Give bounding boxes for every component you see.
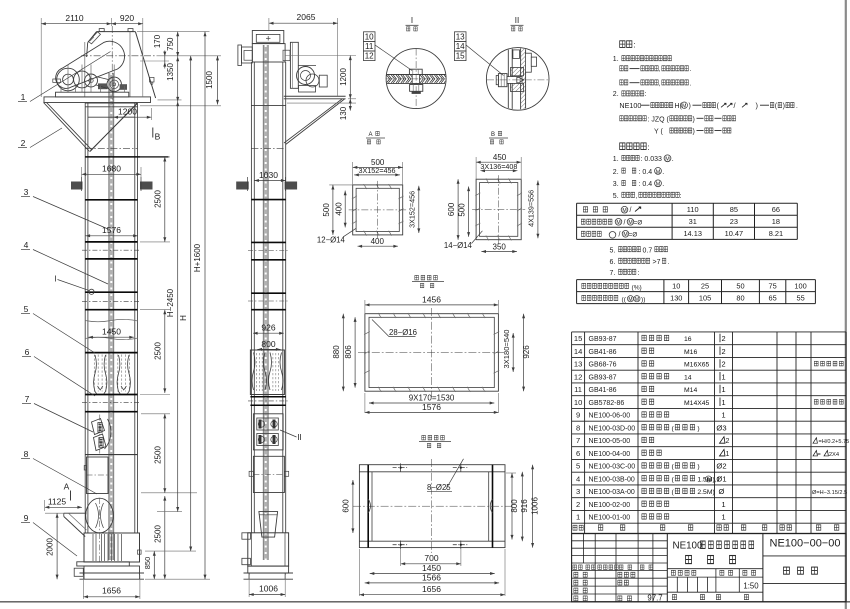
svg-text:450: 450	[493, 153, 507, 162]
svg-text:.: .	[690, 66, 692, 73]
svg-text:65: 65	[768, 293, 776, 302]
svg-text:M: M	[665, 157, 670, 163]
svg-text:1450: 1450	[102, 326, 121, 336]
svg-text:14: 14	[456, 42, 465, 51]
svg-text:28−Ø16: 28−Ø16	[389, 328, 417, 337]
svg-text:NE100-04-00: NE100-04-00	[589, 451, 631, 458]
svg-text:10.47: 10.47	[725, 229, 744, 238]
svg-text:>7: >7	[653, 259, 661, 266]
svg-text:2500: 2500	[153, 446, 162, 464]
svg-text:M14: M14	[684, 387, 697, 394]
svg-text:800: 800	[510, 499, 519, 513]
svg-text:1.: 1.	[613, 56, 619, 63]
svg-text:3.: 3.	[613, 181, 619, 188]
svg-text:2: 2	[721, 360, 725, 369]
svg-text:926: 926	[261, 323, 275, 333]
svg-text:3: 3	[24, 187, 29, 197]
svg-text::: :	[633, 41, 635, 50]
svg-text:7: 7	[576, 436, 580, 445]
svg-text:11: 11	[574, 385, 582, 394]
svg-text:1: 1	[721, 513, 725, 522]
svg-text:): )	[693, 129, 695, 136]
svg-text:12: 12	[574, 372, 582, 381]
svg-text:NE100-02-00: NE100-02-00	[589, 502, 631, 509]
svg-text:: 0.4: : 0.4	[639, 181, 653, 188]
svg-text:,: ,	[659, 66, 661, 73]
svg-text:3X136=408: 3X136=408	[480, 162, 517, 171]
svg-text:Ø2: Ø2	[716, 462, 726, 471]
svg-text:NE100−00−00: NE100−00−00	[770, 538, 841, 550]
svg-text:NE100-03C-00: NE100-03C-00	[589, 464, 636, 471]
svg-text:/: /	[619, 232, 621, 239]
svg-text:M: M	[682, 104, 686, 110]
svg-text:1125: 1125	[48, 497, 67, 507]
svg-text:2.: 2.	[613, 169, 619, 176]
svg-text:: 0.4: : 0.4	[639, 169, 653, 176]
svg-text:12: 12	[365, 52, 374, 61]
svg-text:105: 105	[699, 293, 711, 302]
svg-text:3X152=456: 3X152=456	[407, 191, 416, 228]
svg-text:1: 1	[721, 372, 725, 381]
svg-text:7.: 7.	[610, 270, 616, 277]
svg-text:.: .	[672, 156, 674, 163]
svg-text:,: ,	[636, 193, 638, 200]
svg-text::: :	[680, 193, 682, 200]
svg-text:920: 920	[120, 13, 134, 23]
svg-text:13: 13	[456, 32, 465, 41]
svg-text:2000: 2000	[46, 538, 55, 556]
svg-text:1656: 1656	[422, 584, 441, 594]
svg-text:): )	[693, 116, 695, 123]
svg-text:12−Ø14: 12−Ø14	[317, 236, 346, 245]
svg-text:700: 700	[424, 553, 438, 563]
svg-text:1500: 1500	[205, 71, 214, 89]
svg-text:1006: 1006	[259, 584, 278, 594]
svg-text:1566: 1566	[422, 572, 441, 582]
svg-text:1: 1	[726, 451, 730, 458]
svg-text:8: 8	[24, 449, 29, 459]
svg-text:.: .	[662, 181, 664, 188]
svg-text:M: M	[635, 297, 639, 303]
svg-text:18: 18	[772, 217, 780, 226]
svg-text::: :	[638, 270, 640, 277]
svg-text:97.7: 97.7	[647, 593, 662, 602]
svg-text:9: 9	[24, 513, 29, 523]
svg-text:1: 1	[721, 500, 725, 509]
svg-text:8.21: 8.21	[769, 229, 783, 238]
svg-text:916: 916	[520, 499, 529, 513]
svg-text:6: 6	[25, 347, 30, 357]
svg-text:10: 10	[365, 32, 374, 41]
svg-text:M: M	[628, 220, 632, 226]
svg-text:: 0.033: : 0.033	[641, 156, 663, 163]
svg-text:100: 100	[794, 281, 806, 290]
svg-text:1:50: 1:50	[743, 582, 759, 591]
svg-text:A: A	[64, 482, 70, 492]
svg-text:M: M	[616, 220, 620, 226]
svg-text:1576: 1576	[422, 402, 441, 412]
svg-text:4: 4	[24, 240, 29, 250]
svg-text:1: 1	[721, 411, 725, 420]
svg-text:110: 110	[687, 205, 699, 214]
svg-text:Ø: Ø	[719, 487, 725, 496]
svg-text:H−2450: H−2450	[166, 288, 175, 317]
svg-text:2500: 2500	[153, 190, 162, 208]
svg-text:GB93-87: GB93-87	[589, 336, 617, 343]
svg-text:/: /	[624, 219, 626, 226]
svg-text:H: H	[179, 315, 188, 321]
svg-text:1030: 1030	[259, 170, 278, 180]
svg-text:): )	[783, 103, 785, 110]
svg-text:=Ø: =Ø	[629, 231, 638, 238]
svg-text:M: M	[623, 232, 627, 238]
svg-text:600: 600	[447, 202, 456, 216]
svg-text:M: M	[656, 169, 661, 175]
svg-text:25: 25	[701, 281, 709, 290]
svg-text:850: 850	[143, 557, 152, 570]
svg-text:2110: 2110	[65, 13, 84, 23]
svg-text:170: 170	[153, 34, 162, 48]
svg-text:NE100-06-00: NE100-06-00	[589, 413, 631, 420]
svg-text:400: 400	[334, 202, 343, 216]
svg-text:M14X45: M14X45	[684, 400, 710, 407]
svg-text:7: 7	[25, 394, 30, 404]
svg-text:Ø1: Ø1	[716, 474, 726, 483]
svg-text:400: 400	[371, 237, 385, 246]
svg-text:M16: M16	[684, 349, 697, 356]
svg-text:1576: 1576	[102, 225, 121, 235]
svg-text:1: 1	[721, 385, 725, 394]
svg-text::: :	[647, 143, 649, 152]
svg-text:): )	[689, 103, 691, 110]
svg-text:NE100: NE100	[673, 541, 704, 552]
svg-text:NE100-05-00: NE100-05-00	[589, 438, 631, 445]
svg-text:4X139=556: 4X139=556	[526, 190, 535, 227]
svg-text:M: M	[656, 182, 661, 188]
svg-text:85: 85	[730, 205, 738, 214]
svg-text:1: 1	[721, 398, 725, 407]
svg-text:1680: 1680	[102, 164, 121, 174]
svg-text:4: 4	[576, 474, 580, 483]
svg-text:5: 5	[576, 462, 580, 471]
svg-text:8: 8	[576, 423, 580, 432]
svg-text:Y (: Y (	[654, 129, 663, 136]
svg-text:13: 13	[574, 360, 582, 369]
svg-text:15: 15	[574, 334, 582, 343]
svg-text:GB5782-86: GB5782-86	[589, 400, 625, 407]
svg-text:NE100-03B-00: NE100-03B-00	[589, 476, 635, 483]
svg-text:NE100-03A-00: NE100-03A-00	[589, 489, 635, 496]
svg-text:.: .	[662, 169, 664, 176]
svg-text:5: 5	[24, 304, 29, 314]
svg-text:2500: 2500	[153, 342, 162, 360]
svg-text:.: .	[796, 103, 798, 110]
svg-text:.: .	[668, 259, 670, 266]
svg-text:GB41-86: GB41-86	[589, 349, 617, 356]
svg-text:880: 880	[332, 345, 341, 359]
svg-text:10: 10	[672, 281, 680, 290]
svg-text::: :	[645, 91, 647, 98]
svg-text:3: 3	[576, 487, 580, 496]
svg-text:=Ø: =Ø	[634, 219, 643, 226]
svg-text:): )	[697, 425, 699, 432]
svg-text:16: 16	[684, 336, 692, 343]
svg-text:,: ,	[659, 80, 661, 87]
svg-text:Ø3: Ø3	[716, 423, 726, 432]
svg-text:3X152=456: 3X152=456	[359, 166, 396, 175]
svg-text:1456: 1456	[422, 294, 441, 304]
svg-text:B: B	[155, 132, 161, 142]
svg-text:NE100-03D-00: NE100-03D-00	[589, 425, 636, 432]
svg-text:): )	[756, 101, 758, 110]
svg-text:M: M	[628, 297, 632, 303]
svg-text:600: 600	[342, 499, 351, 513]
svg-text:14: 14	[684, 374, 692, 381]
svg-text:14.13: 14.13	[683, 229, 702, 238]
svg-text:M16X65: M16X65	[684, 362, 710, 369]
svg-text:)): ))	[641, 296, 645, 303]
svg-text:I: I	[54, 275, 56, 284]
svg-text:6.: 6.	[610, 259, 616, 266]
svg-text:23: 23	[730, 217, 738, 226]
svg-text:M: M	[707, 477, 711, 482]
svg-text:806: 806	[344, 345, 353, 359]
svg-text:.: .	[690, 80, 692, 87]
svg-text:2: 2	[726, 438, 730, 445]
svg-text:NE100-01-00: NE100-01-00	[589, 515, 631, 522]
svg-text:75: 75	[768, 281, 776, 290]
svg-text:6: 6	[576, 449, 580, 458]
svg-text:1006: 1006	[531, 497, 540, 515]
svg-text:2: 2	[721, 347, 725, 356]
svg-text:0.7: 0.7	[643, 247, 653, 254]
svg-text:11: 11	[365, 42, 374, 51]
svg-text:5.: 5.	[610, 247, 616, 254]
svg-text:2X4: 2X4	[829, 452, 840, 458]
svg-text:I: I	[411, 16, 413, 25]
svg-text:=: =	[817, 452, 821, 458]
svg-text:2500: 2500	[153, 525, 162, 543]
svg-text:9: 9	[576, 411, 580, 420]
svg-text:1: 1	[21, 92, 26, 102]
svg-text:M: M	[622, 208, 626, 214]
svg-text:500: 500	[458, 203, 467, 217]
svg-text:31: 31	[689, 217, 697, 226]
svg-text:GB93-87: GB93-87	[589, 374, 617, 381]
svg-text:GB41-86: GB41-86	[589, 387, 617, 394]
svg-text:2: 2	[576, 500, 580, 509]
svg-text:5.: 5.	[613, 193, 619, 200]
svg-text:: JZQ (: : JZQ (	[648, 116, 670, 123]
svg-text:2.5M): 2.5M)	[697, 489, 714, 496]
svg-text:130: 130	[339, 106, 348, 120]
svg-text:1656: 1656	[102, 586, 121, 596]
svg-text:1350: 1350	[166, 63, 175, 81]
svg-text:H+1600: H+1600	[193, 243, 202, 272]
svg-text:3X180=540: 3X180=540	[502, 329, 511, 368]
svg-text:926: 926	[522, 345, 531, 359]
svg-text:1: 1	[576, 513, 580, 522]
svg-text:): )	[697, 464, 699, 471]
svg-text:/: /	[630, 207, 632, 214]
svg-text:66: 66	[772, 205, 780, 214]
svg-text:800: 800	[261, 339, 275, 349]
svg-text:Ø=H−3.15/2.5: Ø=H−3.15/2.5	[812, 490, 847, 496]
svg-text:2065: 2065	[297, 12, 316, 22]
svg-text:1.: 1.	[613, 156, 619, 163]
svg-text:10: 10	[574, 398, 582, 407]
svg-text:15: 15	[456, 52, 465, 61]
svg-text:1200: 1200	[118, 107, 137, 117]
svg-text:55: 55	[796, 293, 804, 302]
svg-text:II: II	[297, 433, 301, 442]
svg-text:8−Ø25: 8−Ø25	[427, 483, 451, 492]
svg-text:14−Ø14: 14−Ø14	[444, 241, 473, 250]
svg-text:350: 350	[493, 242, 507, 251]
svg-text:=H/0.2+5.75: =H/0.2+5.75	[819, 439, 850, 445]
svg-text:(%): (%)	[632, 284, 642, 291]
svg-text:B: B	[491, 132, 495, 138]
svg-text:NE100: NE100	[619, 101, 641, 110]
svg-text:II: II	[515, 16, 519, 25]
svg-text:2.: 2.	[613, 91, 619, 98]
svg-text:500: 500	[322, 203, 331, 217]
svg-text:80: 80	[736, 293, 744, 302]
svg-text:14: 14	[574, 347, 582, 356]
svg-text:130: 130	[670, 293, 682, 302]
svg-text:2: 2	[721, 334, 725, 343]
svg-text:50: 50	[736, 281, 744, 290]
svg-text:750: 750	[166, 37, 175, 51]
svg-text:1200: 1200	[339, 68, 348, 86]
svg-text:GB68-76: GB68-76	[589, 362, 617, 369]
svg-text:A: A	[368, 132, 372, 138]
svg-text:2: 2	[21, 138, 26, 148]
